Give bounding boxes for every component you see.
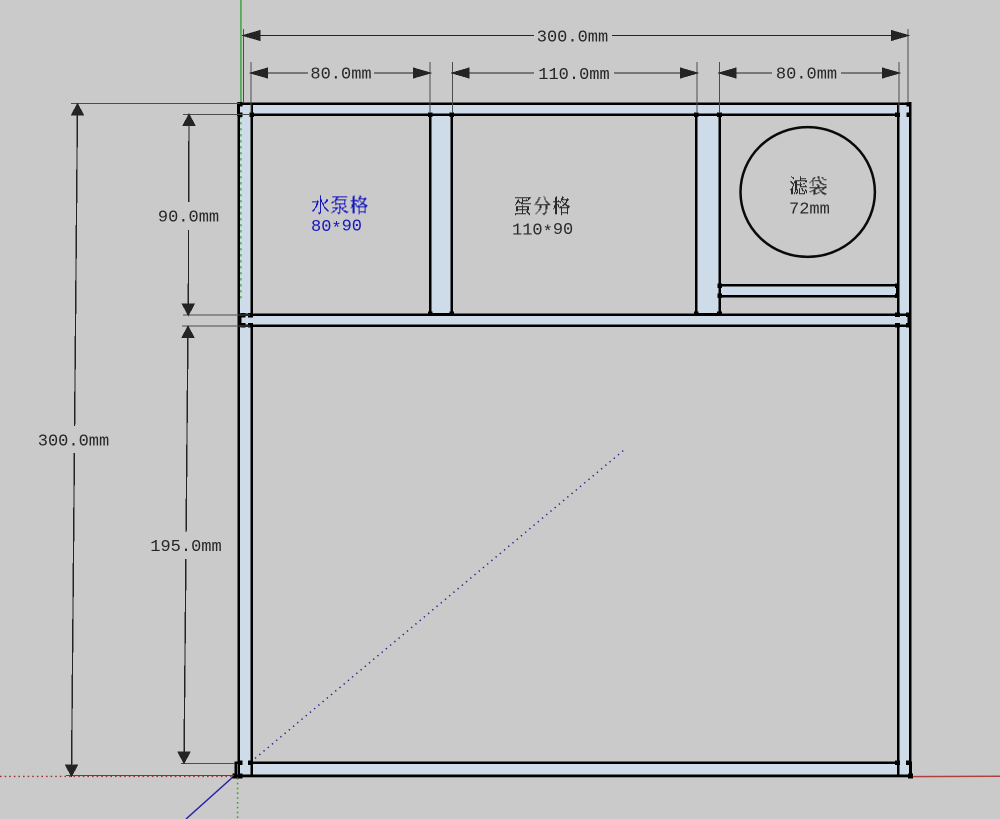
svg-text:80.0mm: 80.0mm — [310, 66, 371, 85]
svg-text:72mm: 72mm — [789, 200, 830, 219]
svg-text:300.0mm: 300.0mm — [537, 29, 608, 48]
svg-text:110*90: 110*90 — [512, 221, 573, 243]
svg-text:110.0mm: 110.0mm — [538, 66, 609, 85]
svg-text:300.0mm: 300.0mm — [38, 432, 109, 451]
svg-text:195.0mm: 195.0mm — [150, 538, 221, 557]
svg-text:80*90: 80*90 — [311, 218, 362, 240]
svg-text:90.0mm: 90.0mm — [158, 209, 219, 228]
svg-text:80.0mm: 80.0mm — [776, 66, 837, 85]
